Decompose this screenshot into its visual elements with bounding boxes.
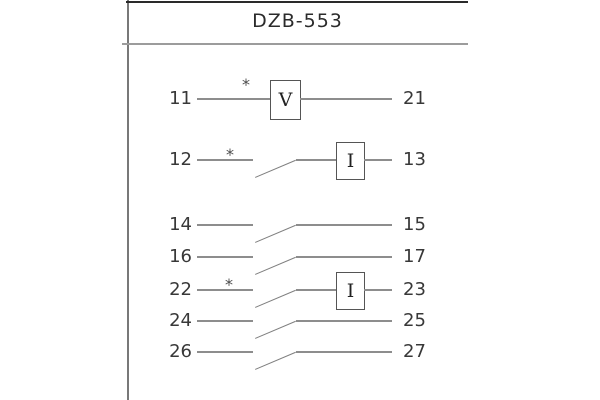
terminal-label-21: 21 xyxy=(403,88,453,110)
wire-segment xyxy=(296,351,392,353)
wire-segment xyxy=(197,159,253,161)
terminal-label-13: 13 xyxy=(403,149,453,171)
terminal-label-23: 23 xyxy=(403,279,453,301)
polarity-star-marker: * xyxy=(242,75,250,94)
wire-segment xyxy=(300,98,392,100)
wire-segment xyxy=(364,159,392,161)
wire-segment xyxy=(197,256,253,258)
title-underline xyxy=(122,43,468,45)
wire-segment xyxy=(197,224,253,226)
polarity-star-marker: * xyxy=(225,275,233,294)
top-border-line xyxy=(126,1,468,3)
terminal-label-26: 26 xyxy=(150,341,192,363)
element-letter-i: I xyxy=(347,150,355,172)
switch-contact-blade xyxy=(255,160,296,178)
terminal-label-11: 11 xyxy=(150,88,192,110)
diagram-title: DZB-553 xyxy=(127,10,468,32)
left-border-line xyxy=(127,0,129,400)
terminal-label-27: 27 xyxy=(403,341,453,363)
terminal-label-25: 25 xyxy=(403,310,453,332)
wire-segment xyxy=(296,320,392,322)
switch-contact-blade xyxy=(255,257,296,275)
wire-segment xyxy=(296,159,336,161)
terminal-label-14: 14 xyxy=(150,214,192,236)
terminal-label-16: 16 xyxy=(150,246,192,268)
terminal-label-22: 22 xyxy=(150,279,192,301)
wire-segment xyxy=(296,289,336,291)
wiring-diagram: DZB-553 11 * V 21 12 * I 13 14 15 16 17 … xyxy=(0,0,600,400)
polarity-star-marker: * xyxy=(226,145,234,164)
wire-segment xyxy=(296,256,392,258)
element-box-voltage: V xyxy=(270,80,301,120)
element-box-current: I xyxy=(336,272,365,310)
element-letter-i: I xyxy=(347,280,355,302)
wire-segment xyxy=(197,98,270,100)
element-letter-v: V xyxy=(279,89,293,111)
element-box-current: I xyxy=(336,142,365,180)
switch-contact-blade xyxy=(255,352,296,370)
wire-segment xyxy=(364,289,392,291)
wire-segment xyxy=(296,224,392,226)
wire-segment xyxy=(197,351,253,353)
switch-contact-blade xyxy=(255,225,296,243)
terminal-label-15: 15 xyxy=(403,214,453,236)
terminal-label-24: 24 xyxy=(150,310,192,332)
terminal-label-17: 17 xyxy=(403,246,453,268)
switch-contact-blade xyxy=(255,321,296,339)
terminal-label-12: 12 xyxy=(150,149,192,171)
switch-contact-blade xyxy=(255,290,296,308)
wire-segment xyxy=(197,320,253,322)
